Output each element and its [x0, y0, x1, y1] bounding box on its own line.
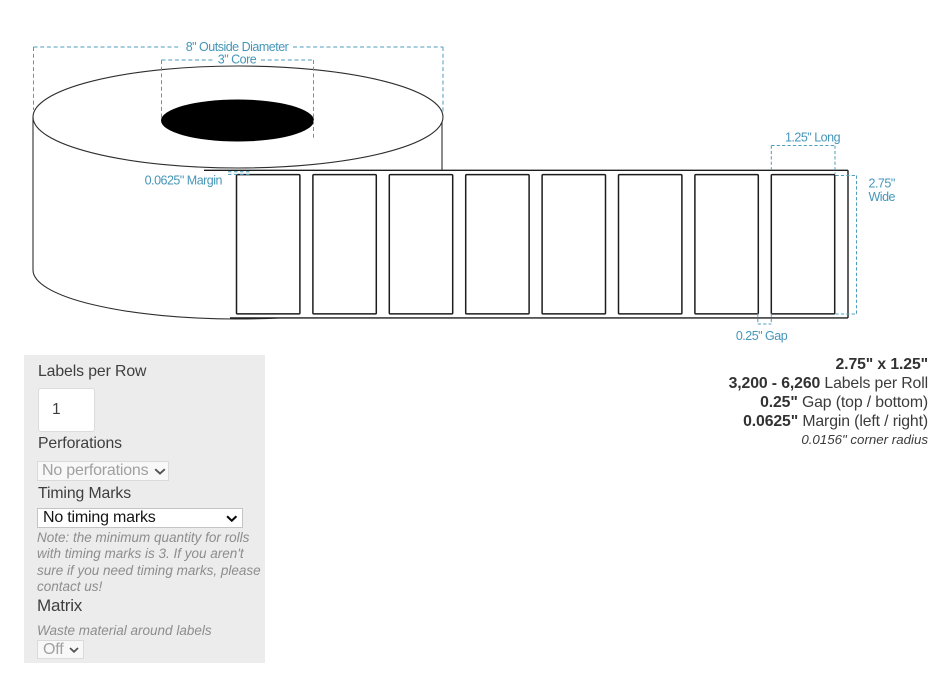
svg-text:1.25" Long: 1.25" Long: [785, 131, 841, 145]
svg-text:0.0625" Margin: 0.0625" Margin: [145, 174, 223, 188]
svg-text:0.25" Gap: 0.25" Gap: [736, 329, 788, 343]
svg-text:2.75": 2.75": [869, 177, 895, 191]
svg-text:3" Core: 3" Core: [218, 53, 257, 67]
svg-text:Wide: Wide: [869, 190, 896, 204]
